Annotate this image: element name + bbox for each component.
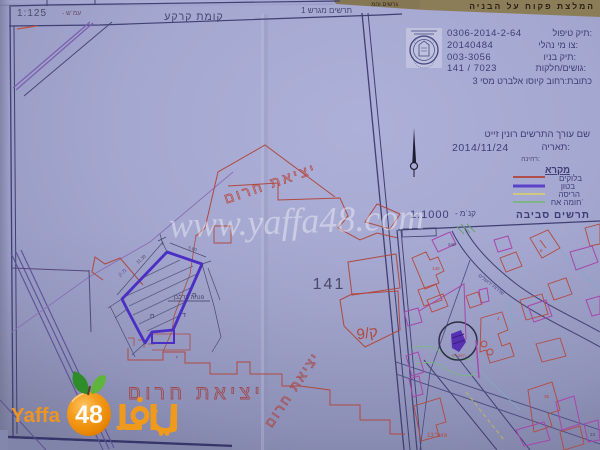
svg-text:141: 141 [313, 276, 346, 293]
svg-text:גושים/חלקות:: גושים/חלקות: [536, 63, 586, 73]
svg-text:תאריה:: תאריה: [541, 142, 570, 153]
svg-text:Yaffa: Yaffa [11, 404, 61, 427]
svg-text:240: 240 [448, 242, 456, 247]
svg-text:שם עורך התרשים רונין זייט: שם עורך התרשים רונין זייט [485, 129, 591, 140]
svg-text:חומה אחˈ: חומה אחˈ [551, 198, 584, 207]
svg-text:1:125: 1:125 [17, 8, 47, 19]
svg-text:רחוב יפו: רחוב יפו [452, 353, 466, 358]
svg-text:תרשים מגרש 1: תרשים מגרש 1 [301, 6, 352, 15]
svg-text:ח: ח [192, 292, 197, 299]
svg-text:- קנˈמ: - קנˈמ [455, 209, 476, 218]
svg-text:תיק טיפול:: תיק טיפול: [552, 28, 592, 38]
svg-text:תרשים סביבה: תרשים סביבה [516, 210, 590, 221]
svg-text:0306-2014-2-64: 0306-2014-2-64 [447, 28, 522, 39]
svg-text:- עמˈש: - עמˈש [62, 9, 81, 17]
svg-text:תיק בניו:: תיק בניו: [544, 52, 576, 62]
svg-text:36: 36 [544, 394, 550, 399]
svg-text:48: 48 [75, 401, 103, 429]
svg-text:2014/11/24: 2014/11/24 [452, 142, 509, 154]
svg-text:י: י [176, 355, 178, 362]
svg-text:ד: ד [182, 312, 186, 319]
svg-text:23: 23 [590, 432, 596, 437]
svg-text:20140484: 20140484 [447, 40, 493, 51]
svg-text:141 / 7023: 141 / 7023 [447, 63, 497, 74]
svg-text:צו מי נהלי:: צו מי נהלי: [538, 40, 578, 50]
svg-text:המלצת פקוח על הבניה: המלצת פקוח על הבניה [469, 1, 595, 11]
svg-text:פועל 13: פועל 13 [427, 431, 448, 439]
svg-text:140: 140 [432, 266, 440, 271]
svg-text:פנחה בדלבן: פנחה בדלבן [174, 293, 205, 301]
svg-text:ח: ח [150, 313, 155, 320]
svg-text:רהינה:: רהינה: [521, 156, 540, 163]
svg-text:003-3056: 003-3056 [447, 52, 491, 63]
svg-text:כתובת:רחוב קיוסו אלברט מסי 3: כתובת:רחוב קיוסו אלברט מסי 3 [473, 76, 593, 86]
svg-text:יציאת חרום: יציאת חרום [128, 383, 264, 404]
